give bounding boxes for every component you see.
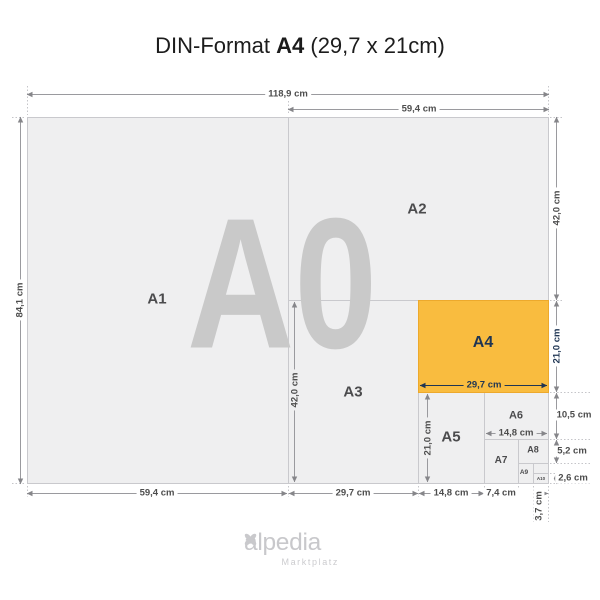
label-a8: A8 bbox=[527, 446, 539, 455]
dim-a3-height: 42,0 cm bbox=[290, 370, 301, 411]
label-a9: A9 bbox=[520, 470, 528, 477]
dim-a6-width: 14,8 cm bbox=[496, 428, 537, 439]
dim-a4-height: 21,0 cm bbox=[552, 326, 563, 367]
dim-a4-width: 29,7 cm bbox=[464, 380, 505, 391]
dim-a0-width: 118,9 cm bbox=[265, 89, 311, 100]
dim-a7-width: 7,4 cm bbox=[483, 488, 519, 499]
label-a5: A5 bbox=[441, 430, 460, 445]
dim-a0-height: 84,1 cm bbox=[15, 280, 26, 321]
dim-a5-height: 21,0 cm bbox=[423, 418, 434, 459]
label-a1: A1 bbox=[147, 292, 166, 307]
label-a6: A6 bbox=[509, 411, 523, 422]
label-a10: A10 bbox=[537, 477, 545, 482]
label-a3: A3 bbox=[343, 385, 362, 400]
dim-a3-width: 29,7 cm bbox=[333, 488, 374, 499]
dim-a6-height: 10,5 cm bbox=[554, 410, 595, 421]
din-format-infographic: DIN-Format A4 (29,7 x 21cm) A0 bbox=[0, 0, 600, 600]
label-a2: A2 bbox=[407, 202, 426, 217]
dim-a10-width: 3,7 cm bbox=[534, 488, 545, 524]
dim-a1-width: 59,4 cm bbox=[137, 488, 178, 499]
label-a4: A4 bbox=[473, 335, 493, 351]
dim-a5-width: 14,8 cm bbox=[431, 488, 472, 499]
dim-a2-height: 42,0 cm bbox=[552, 188, 563, 229]
dim-a8-height: 5,2 cm bbox=[554, 446, 590, 457]
dim-a10-height: 2,6 cm bbox=[555, 473, 591, 484]
dim-a2-width: 59,4 cm bbox=[399, 104, 440, 115]
label-a7: A7 bbox=[495, 456, 508, 466]
